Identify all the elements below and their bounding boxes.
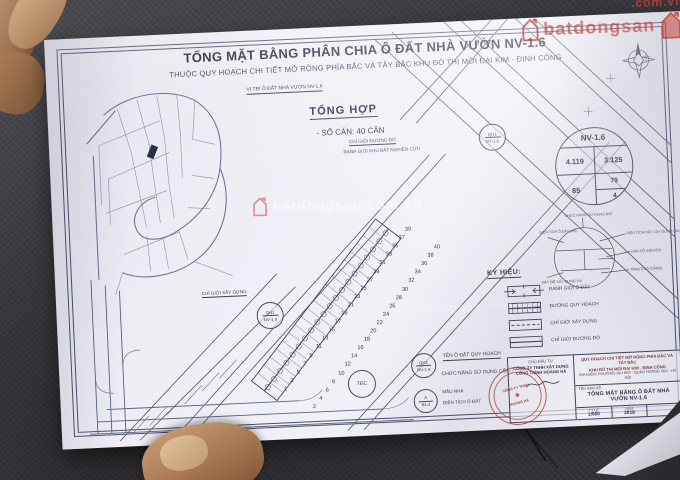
lot-number: 12 (345, 362, 352, 368)
stamp-line1: CÔNG TY TNHH (502, 383, 529, 394)
lot-number: 37 (398, 235, 405, 241)
lot-number: 8 (332, 379, 335, 385)
house-icon (520, 16, 541, 43)
house-icon (252, 195, 268, 217)
lot-number: 17 (335, 319, 342, 325)
lot-number: 21 (348, 302, 355, 308)
photo-of-plan-document: TỔNG MẶT BẰNG PHÂN CHIA Ô ĐẤT NHÀ VƯỜN N… (0, 0, 680, 480)
lot-number: 9 (309, 353, 312, 359)
lot-number: 18 (364, 337, 371, 343)
lot-numbers-layer: 1234567891011121314151617181920212223242… (44, 11, 680, 450)
stamp-line3: HOÀNG HÀ (509, 398, 529, 407)
watermark-middle: batdongsan.com.vn (252, 193, 423, 218)
hand-knuckle (0, 47, 49, 118)
lot-number: 5 (297, 370, 300, 376)
lot-number: 15 (328, 327, 335, 333)
lot-number: 40 (434, 244, 441, 250)
house-icon (658, 8, 680, 41)
lot-number: 36 (421, 261, 428, 267)
lot-number: 22 (376, 320, 383, 326)
watermark-brand: batdongsan (543, 15, 656, 40)
lot-number: 35 (392, 243, 399, 249)
lot-number: 3 (290, 378, 293, 384)
lot-number: 38 (427, 253, 434, 259)
stamp-text: CÔNG TY TNHH ★ HOÀNG HÀ (498, 379, 537, 412)
lot-number: 26 (389, 303, 396, 309)
lot-number: 20 (370, 328, 377, 334)
lot-number: 32 (408, 278, 415, 284)
lot-number: 11 (316, 344, 322, 350)
lot-number: 6 (326, 387, 329, 393)
star-icon: ★ (503, 388, 532, 404)
watermark-top-right: .com.vn batdongsan (519, 0, 680, 46)
lot-number: 34 (415, 269, 422, 275)
lot-number: 25 (360, 285, 367, 291)
lot-number: 24 (383, 311, 390, 317)
lot-number: 1 (284, 386, 287, 392)
lot-number: 7 (303, 361, 306, 367)
lot-number: 30 (402, 286, 409, 292)
lot-number: 23 (354, 294, 361, 300)
lot-number: 2 (313, 404, 316, 410)
lot-number: 13 (322, 336, 329, 342)
lot-number: 28 (396, 295, 403, 301)
watermark-text: batdongsan.com.vn (273, 196, 422, 215)
lot-number: 29 (373, 269, 380, 275)
lot-number: 10 (338, 370, 345, 376)
plan-sheet-paper: TỔNG MẶT BẰNG PHÂN CHIA Ô ĐẤT NHÀ VƯỜN N… (44, 11, 680, 450)
lot-number: 14 (351, 353, 358, 359)
lot-number: 19 (341, 311, 348, 317)
lot-number: 27 (367, 277, 374, 283)
lot-number: 33 (386, 252, 393, 258)
lot-number: 31 (379, 260, 386, 266)
lot-number: 39 (405, 227, 412, 233)
lot-number: 16 (357, 345, 364, 351)
lot-number: 4 (319, 396, 322, 402)
ground-scratch (528, 433, 558, 469)
